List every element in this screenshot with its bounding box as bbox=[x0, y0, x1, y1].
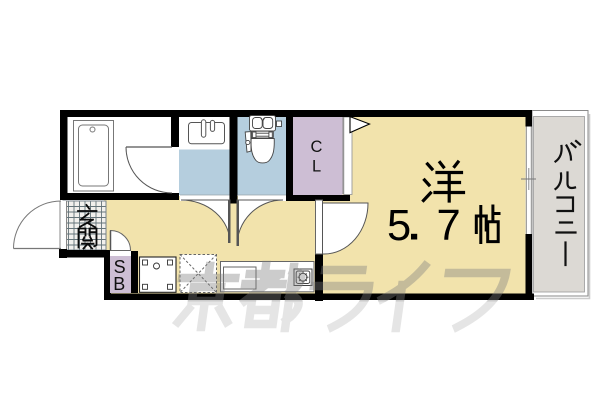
svg-text:7: 7 bbox=[437, 202, 461, 250]
svg-text:L: L bbox=[312, 158, 321, 176]
svg-text:5: 5 bbox=[387, 202, 411, 250]
svg-text:B: B bbox=[113, 274, 125, 294]
svg-text:C: C bbox=[311, 138, 323, 156]
